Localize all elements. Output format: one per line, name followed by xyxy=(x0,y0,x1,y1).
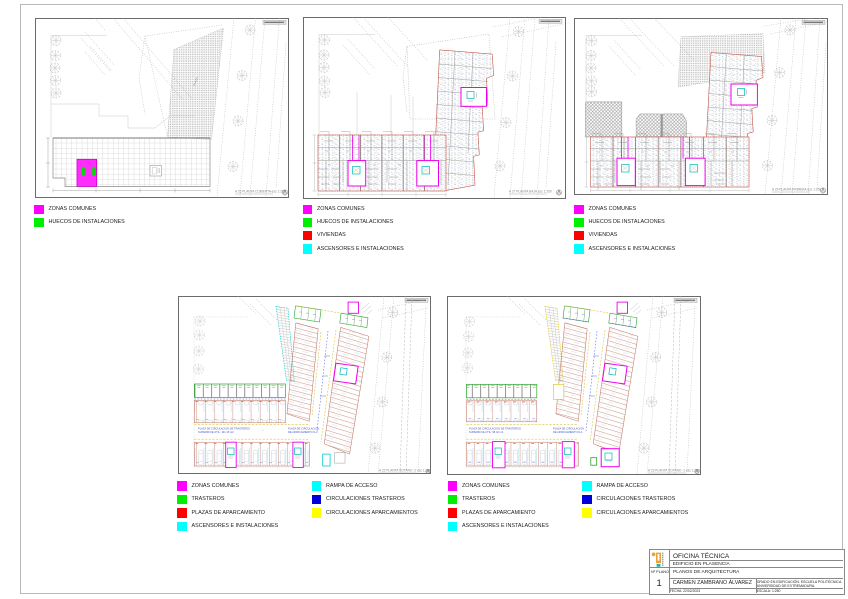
svg-text:SUPERFICIE UTIL: 98.42 m2: SUPERFICIE UTIL: 98.42 m2 xyxy=(469,430,504,434)
svg-text:DE APARCAMIENTO N-2: DE APARCAMIENTO N-2 xyxy=(288,430,318,434)
svg-text:PLAZA DE CIRCULACION DE TRASTE: PLAZA DE CIRCULACION DE TRASTEROS xyxy=(469,427,521,431)
svg-text:A 29 PLANTA PRIMERA esc 1:25: A 29 PLANTA PRIMERA esc 1:250 xyxy=(772,188,821,192)
svg-text:--: -- xyxy=(262,429,264,432)
svg-text:A 22 PLANTA SOTANO -2 esc 1:: A 22 PLANTA SOTANO -2 esc 1:250 xyxy=(379,469,431,473)
svg-text:PLAZA DE CIRCULACION DE TRASTE: PLAZA DE CIRCULACION DE TRASTEROS xyxy=(198,427,250,431)
svg-text:A 25 PLANTA CUBIERTA esc 1:2: A 25 PLANTA CUBIERTA esc 1:250 xyxy=(235,190,286,194)
svg-text:A 27 PLANTA BAJA esc 1:250: A 27 PLANTA BAJA esc 1:250 xyxy=(509,190,552,194)
svg-text:SUPERFICIE UTIL: 121.15 m2: SUPERFICIE UTIL: 121.15 m2 xyxy=(198,430,234,434)
svg-text:PLAZA DE CIRCULACION: PLAZA DE CIRCULACION xyxy=(553,427,584,431)
svg-text:DE APARCAMIENTO N-1: DE APARCAMIENTO N-1 xyxy=(553,430,583,434)
svg-text:A 23 PLANTA SOTANO -1 esc 1:: A 23 PLANTA SOTANO -1 esc 1:250 xyxy=(648,469,700,473)
svg-text:PLAZA DE CIRCULACION: PLAZA DE CIRCULACION xyxy=(288,427,319,431)
